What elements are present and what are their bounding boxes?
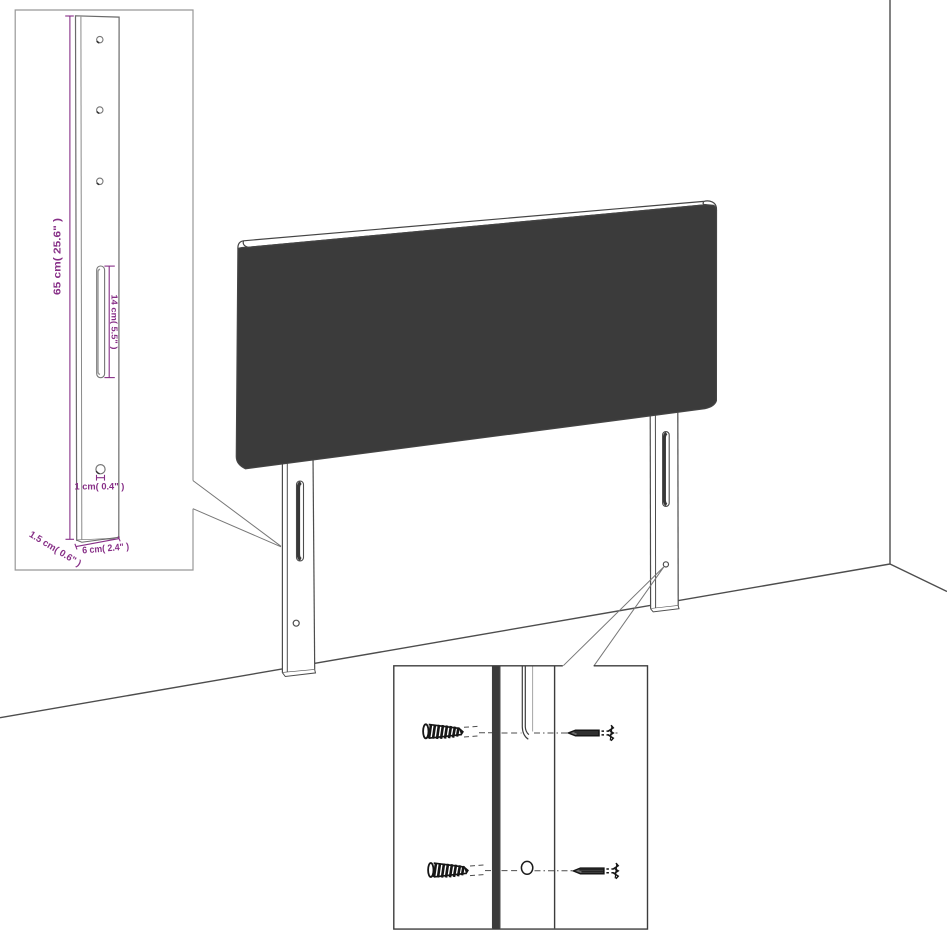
svg-text:65 cm( 25.6" ): 65 cm( 25.6" ) [52,218,64,295]
svg-text:14 cm( 5.5" ): 14 cm( 5.5" ) [110,295,119,350]
svg-text:1 cm( 0.4" ): 1 cm( 0.4" ) [75,482,125,493]
